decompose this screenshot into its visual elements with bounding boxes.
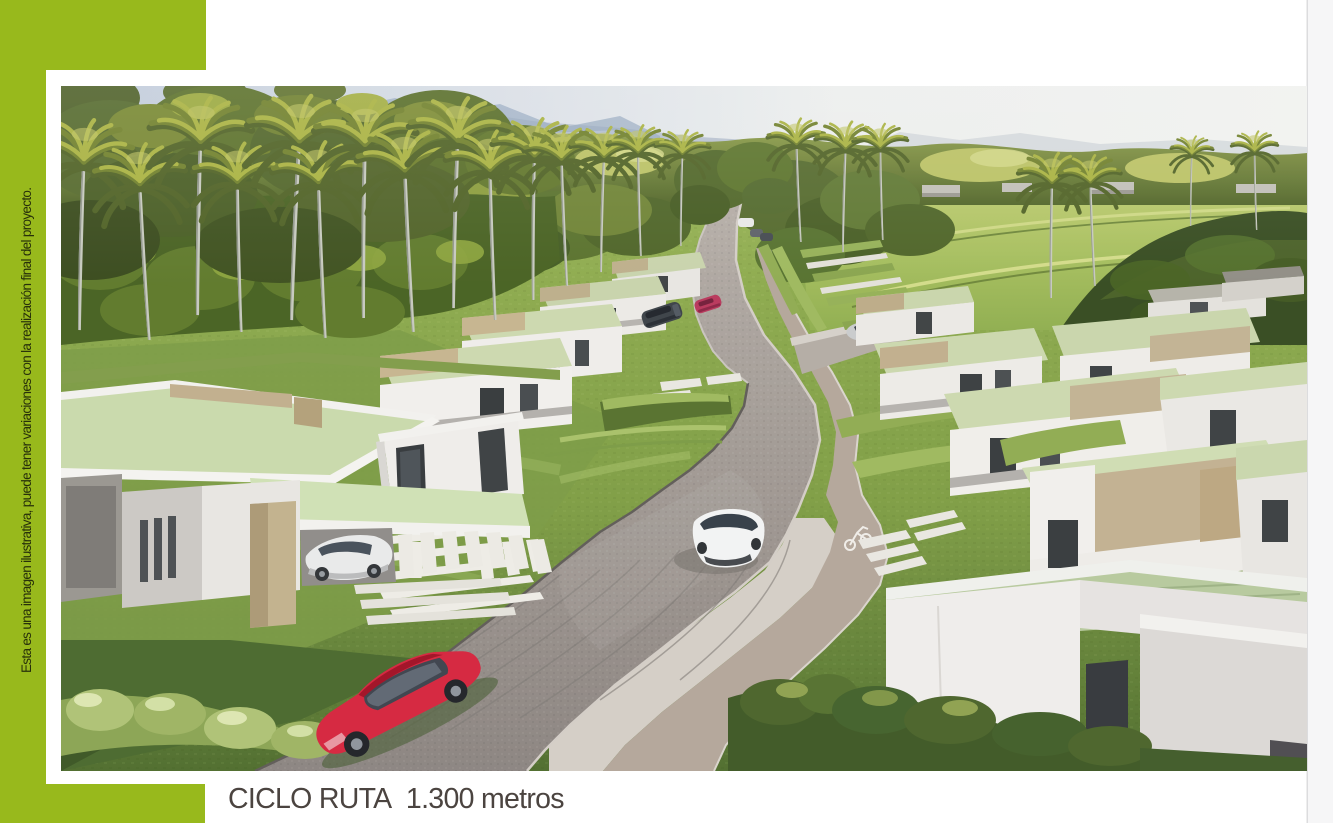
- svg-text:Esta es una imagen ilustrativa: Esta es una imagen ilustrativa, puede te…: [19, 187, 34, 673]
- svg-text:CICLO RUTA 1.300 metros: CICLO RUTA 1.300 metros: [228, 783, 564, 815]
